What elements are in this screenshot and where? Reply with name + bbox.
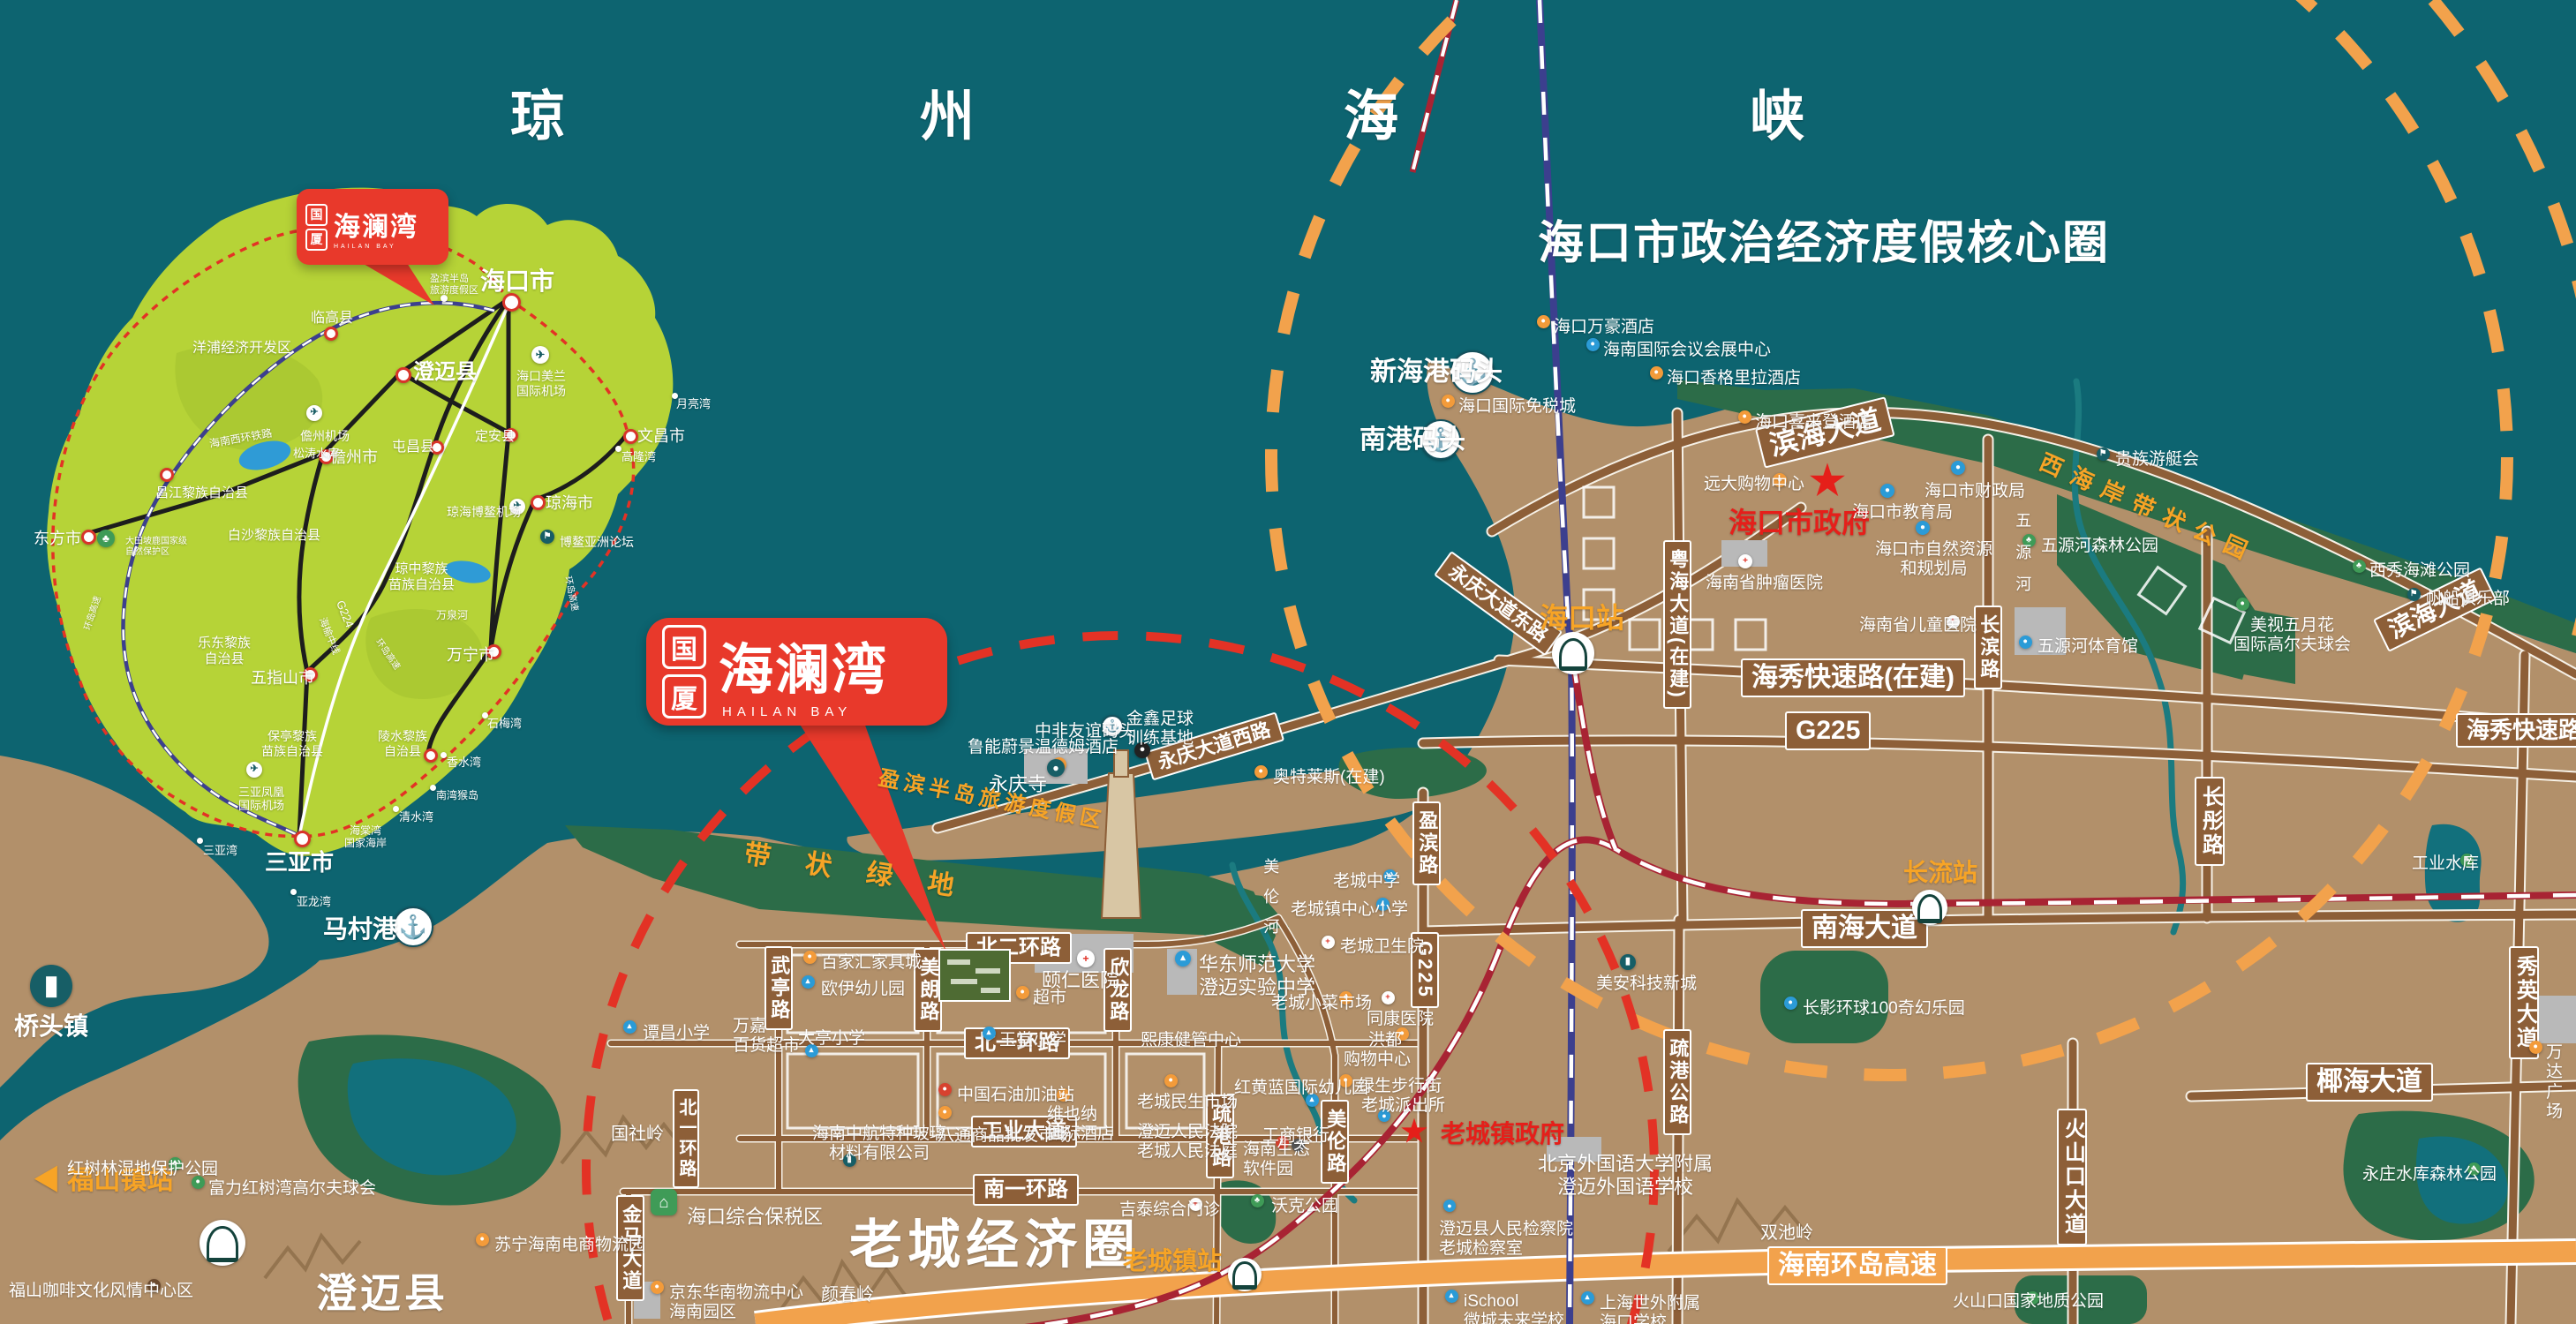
road-yuehai-v: 粤海大道(在建): [1663, 540, 1691, 709]
hosp-icon: +: [1077, 950, 1095, 967]
poi-finance-bureau: 海口市财政局: [1924, 482, 2025, 501]
poi-shangrila: 海口香格里拉酒店: [1667, 369, 1801, 388]
river-wuyuanhe: 五源河: [2013, 512, 2031, 607]
poi-procuratorate: 澄迈县人民检察院 老城检察室: [1439, 1220, 1573, 1260]
conf-icon: ●: [1586, 338, 1600, 351]
inset-dongfang: 东方市: [34, 530, 81, 548]
hill-shuangchiling: 双池岭: [1760, 1223, 1813, 1245]
poi-wuyuanhe-gym: 五源河体育馆: [2037, 637, 2138, 657]
poi-jd-logistics: 京东华南物流中心 海南园区: [669, 1283, 803, 1323]
school-icon: ▴: [623, 1020, 636, 1034]
road-haixiu-2: 海秀快速路: [2456, 713, 2576, 748]
shop-icon: ●: [651, 1281, 664, 1294]
strait-char-4: 峡: [1750, 85, 1804, 149]
poi-court: 澄迈人民法院 老城人民法庭: [1137, 1123, 1238, 1162]
inset-qingshuiwan: 清水湾: [399, 810, 433, 824]
nodeW-icon: [441, 752, 447, 758]
gov-haikou: 海口市政府: [1729, 507, 1870, 540]
poi-yongzhuang-park: 永庄水库森林公园: [2362, 1165, 2497, 1185]
school-icon: ▴: [1445, 1290, 1458, 1303]
port-xinhaigang: 新海港码头: [1370, 357, 1503, 387]
poi-petrochina: 中国石油加油站: [957, 1086, 1074, 1105]
shop-icon: ●: [938, 1106, 952, 1119]
hosp-icon: +: [1322, 936, 1335, 949]
poi-laocheng-clinic: 老城卫生院: [1340, 937, 1424, 957]
poi-mangrove-park: 红树林湿地保护公园: [67, 1160, 218, 1179]
poi-changying-park: 长影环球100奇幻乐园: [1803, 999, 1965, 1019]
sail-icon: ⚑: [540, 530, 554, 544]
sport-icon: ●: [2019, 636, 2032, 649]
inset-dingan: 定安县: [475, 429, 515, 445]
nodeW-icon: [393, 806, 399, 812]
poi-sheraton: 海口喜来登酒店: [1755, 413, 1872, 433]
poi-edu-bureau: 海口市教育局: [1852, 503, 1953, 523]
headline: 海口市政治经济度假核心圈: [1538, 217, 2110, 271]
deer-icon: ♣: [97, 530, 115, 547]
poi-lvsheng-street: 绿生步行街: [1358, 1077, 1442, 1096]
poi-yacht-club: 贵族游艇会: [2115, 450, 2199, 470]
logo-name: 海澜湾: [334, 205, 418, 244]
poi-laocheng-middle-school: 老城中学: [1333, 872, 1400, 891]
poi-meishi-golf: 美视五月花 国际高尔夫球会: [2233, 616, 2351, 656]
school-icon: ▴: [983, 1027, 996, 1040]
gov-icon: ●: [1951, 461, 1965, 475]
road-huandao-expwy: 海南环岛高速: [1767, 1246, 1947, 1285]
temple-icon: ●: [1047, 759, 1065, 777]
poi-wanhao-hotel: 海口万豪酒店: [1554, 318, 1654, 337]
station-haikou: 海口站: [1540, 602, 1624, 636]
inset-ledong: 乐东黎族 自治县: [198, 636, 251, 666]
station-laochengzhen: 老城镇站: [1123, 1246, 1222, 1275]
factory-icon: ▮: [1620, 954, 1636, 970]
strait-char-1: 琼: [510, 85, 565, 149]
node-icon: [531, 495, 546, 510]
poi-yongqing-temple: 永庆寺: [989, 773, 1047, 796]
poi-minsheng-market: 老城民生市场: [1137, 1093, 1238, 1112]
poi-police-station: 老城派出所: [1361, 1096, 1445, 1116]
poi-ouyi-kindergarten: 欧伊幼儿园: [821, 980, 905, 999]
gov-laocheng: 老城镇政府: [1441, 1119, 1564, 1148]
poi-eco-software-park: 海南生态 软件园: [1243, 1140, 1310, 1180]
poi-children-hospital: 海南省儿童医院: [1859, 616, 1977, 636]
road-yehai: 椰海大道: [2306, 1063, 2433, 1102]
inset-changjiang: 昌江黎族自治县: [155, 485, 248, 501]
river-meilunhe: 美伦河: [1261, 858, 1279, 948]
poi-yutang-primary: 玉堂小学: [999, 1031, 1066, 1050]
nodeW-icon: [615, 446, 621, 452]
inset-sanya: 三亚市: [265, 849, 334, 876]
inset-wenchang: 文昌市: [637, 427, 685, 446]
star-icon: ★: [1399, 1117, 1429, 1147]
train-icon: [1552, 632, 1594, 674]
poi-hongdu: 洪都: [1368, 1031, 1402, 1050]
inset-danzhou-airport: 儋州机场: [300, 429, 350, 444]
hotel-icon: ●: [1650, 366, 1663, 380]
inset-yangpu: 洋浦经济开发区: [192, 341, 291, 357]
inset-tunchang: 屯昌县: [392, 440, 434, 456]
inset-shimeiwan: 石梅湾: [487, 717, 522, 730]
strait-char-3: 海: [1344, 85, 1398, 149]
poi-natural-resources: 海口市自然资源 和规划局: [1875, 540, 1992, 580]
shop-icon: ●: [1442, 395, 1455, 408]
hosp-icon: +: [1738, 554, 1752, 568]
hailan-bay-logo: 国 厦 海澜湾 HAILAN BAY: [646, 618, 947, 726]
poi-batong-market: 八通商品批发市场: [938, 1126, 1072, 1146]
school-icon: ▴: [802, 975, 815, 989]
road-shugang-gonglu-v: 疏港公路: [1663, 1029, 1691, 1135]
poi-huadong-school: 华东师范大学 澄迈实验中学: [1199, 953, 1315, 999]
shop-icon: ●: [1164, 1074, 1178, 1087]
inset-qionghai: 琼海市: [546, 494, 593, 513]
inset-boao-airport: 琼海博鳌机场: [447, 505, 521, 520]
road-yingbin-v: 盈滨路: [1412, 801, 1441, 885]
poi-dutyfree: 海口国际免税城: [1458, 397, 1576, 417]
plane-icon: ✈: [531, 346, 549, 364]
logo-name-en: HAILAN BAY: [722, 704, 888, 719]
inset-wuzhishan: 五指山市: [251, 669, 314, 688]
map-stage: 国 厦 海澜湾 HAILAN BAY 国 厦 海澜湾 HAILAN BAY 琼州…: [0, 0, 2576, 1324]
poi-yuanda-mall: 远大购物中心: [1704, 475, 1804, 494]
hill-yanchunling: 颜春岭: [821, 1285, 874, 1306]
hailan-bay-logo-inset: 国 厦 海澜湾 HAILAN BAY: [297, 189, 448, 265]
inset-xiangshuiwan: 香水湾: [447, 756, 481, 769]
node-icon: [160, 468, 174, 482]
school-icon: ▴: [1175, 951, 1191, 967]
inset-sanyawan: 三亚湾: [203, 844, 237, 857]
inset-baoting: 保亭黎族 苗族自治县: [261, 729, 323, 758]
project-site-rendering: [938, 949, 1011, 1002]
logo-prefix-char-1: 国: [662, 625, 706, 669]
shop-icon: ●: [2529, 1041, 2542, 1054]
anchor-icon: ⚓: [393, 906, 433, 947]
inset-lingshui: 陵水黎族 自治县: [378, 729, 427, 758]
poi-woke-park: 沃克公园: [1271, 1197, 1338, 1216]
road-haixiu-1: 海秀快速路(在建): [1741, 658, 1965, 697]
poi-outlets: 奥特莱斯(在建): [1273, 768, 1385, 787]
node-icon: [81, 530, 96, 545]
leaf-icon: ♣: [2353, 560, 2366, 573]
inset-wanning: 万宁市: [447, 646, 494, 665]
film-icon: ●: [1784, 997, 1797, 1010]
logo-prefix: 国 厦: [305, 204, 328, 251]
shop-icon: ●: [1016, 986, 1029, 999]
poi-wanda: 万达广场: [2546, 1043, 2576, 1123]
poi-hongdu-mall: 购物中心: [1344, 1050, 1411, 1070]
inset-boao-forum: 博鳌亚洲论坛: [560, 535, 634, 550]
road-g225: G225: [1785, 711, 1871, 750]
train-icon: [200, 1220, 245, 1266]
inset-qiongzhong: 琼中黎族 苗族自治县: [388, 561, 455, 592]
poi-fuli-golf: 富力红树湾高尔夫球会: [208, 1179, 376, 1199]
gas-icon: ●: [938, 1083, 952, 1096]
poi-zhonghang-glass: 海南中航特种玻璃 材料有限公司: [812, 1125, 946, 1164]
poi-dating-primary: 大亭小学: [798, 1029, 865, 1049]
road-changtong-v: 长彤路: [2195, 777, 2225, 866]
inset-meilan-airport: 海口美兰 国际机场: [516, 369, 566, 398]
poi-jinxin-soccer: 金鑫足球 训练基地: [1126, 710, 1194, 749]
inset-chengmai: 澄迈县: [413, 360, 477, 385]
inset-baisha: 白沙黎族自治县: [228, 528, 320, 544]
road-nan1huan: 南一环路: [973, 1174, 1079, 1206]
plane-icon: ✈: [246, 762, 262, 778]
factory-icon: ▮: [30, 965, 72, 1007]
road-huoshankou-v: 火山口大道: [2057, 1109, 2087, 1245]
inset-songtao: 松涛水库: [293, 447, 339, 460]
poi-luneng-hotel: 鲁能蔚景温德姆酒店: [968, 738, 1119, 757]
hotel-icon: ●: [1738, 410, 1751, 424]
logo-prefix-char-2: 厦: [305, 229, 328, 251]
poi-wuyuanhe-park: 五源河森林公园: [2041, 537, 2158, 556]
poi-baijiahui: 百家汇家具城: [821, 953, 922, 973]
town-qiaotou: 桥头镇: [14, 1012, 88, 1041]
golf-icon: ●: [2236, 598, 2249, 611]
poi-shijiewai-school: 上海世外附属 海口学校: [1600, 1294, 1700, 1324]
poi-free-trade-zone: 海口综合保税区: [687, 1206, 823, 1229]
gov-icon: ●: [1443, 1200, 1456, 1212]
inset-nanwan: 南湾猴岛: [436, 789, 478, 801]
hosp-icon: +: [1382, 991, 1395, 1004]
hotel-icon: ●: [1537, 315, 1550, 328]
logo-name: 海澜湾: [719, 625, 888, 704]
road-changbin-v: 长滨路: [1974, 606, 2002, 689]
inset-yingbin-resort: 盈滨半岛 旅游度假区: [430, 274, 478, 297]
poi-volcano-park: 火山口国家地质公园: [1953, 1292, 2104, 1312]
road-nanhai: 南海大道: [1801, 909, 1928, 948]
poi-convention-center: 海南国际会议会展中心: [1603, 341, 1771, 360]
station-changliu: 长流站: [1903, 858, 1977, 887]
shop-icon: ●: [476, 1233, 489, 1246]
poi-ischool: iSchool 微城未来学校: [1464, 1292, 1564, 1324]
inset-haikou: 海口市: [480, 267, 554, 296]
poi-xixiu-beach: 西秀海滩公园: [2369, 561, 2470, 581]
strait-char-2: 州: [920, 85, 975, 149]
nodeW-icon: [197, 838, 203, 844]
sail-icon: ⚑: [2097, 448, 2110, 461]
inset-phoenix-airport: 三亚凤凰 国际机场: [238, 786, 284, 813]
road-bei1huan-v: 北一环路: [673, 1089, 699, 1188]
hill-guosheling: 国社岭: [611, 1125, 664, 1146]
train-icon: [1912, 890, 1947, 925]
poi-beiwai-school: 北京外国语大学附属 澄迈外国语学校: [1538, 1153, 1713, 1199]
node-icon: [294, 831, 311, 847]
poi-jitai-clinic: 吉泰综合门诊: [1119, 1200, 1220, 1220]
inset-wanquanhe: 万泉河: [436, 609, 468, 621]
logo-name-en: HAILAN BAY: [334, 244, 418, 250]
poi-suning-logistics: 苏宁海南电商物流园: [494, 1236, 645, 1255]
poi-meian-tech-city: 美安科技新城: [1596, 974, 1697, 994]
poi-fushan-coffee: 福山咖啡文化风情中心区: [9, 1282, 193, 1301]
poi-hhl-kindergarten: 红黄蓝国际幼儿园: [1234, 1079, 1368, 1098]
shop-icon: ●: [1254, 765, 1268, 779]
poi-laocheng-primary: 老城镇中心小学: [1291, 900, 1408, 920]
econ-circle-title: 老城经济圈: [849, 1215, 1141, 1277]
poi-tanchang-primary: 谭昌小学: [643, 1024, 710, 1043]
poi-xiaocai-market: 老城小菜市场: [1271, 994, 1372, 1013]
node-icon: [395, 367, 411, 383]
poi-supermarket: 超市: [1033, 989, 1066, 1008]
leaf-icon: ♣: [1251, 1194, 1264, 1207]
shop-icon: ●: [803, 951, 817, 964]
port-nangang: 南港码头: [1360, 425, 1465, 455]
school-icon: ▴: [1581, 1291, 1594, 1305]
govgreen-icon: ⌂: [651, 1189, 677, 1215]
poi-gongye-reservoir: 工业水库: [2412, 854, 2479, 874]
poi-xikang-center: 熙康健管中心: [1141, 1031, 1241, 1050]
sail-icon: ⚑: [2407, 588, 2421, 601]
poi-sailing-club: 帆船俱乐部: [2426, 590, 2510, 609]
inset-yueliangwan: 月亮湾: [676, 397, 711, 410]
logo-prefix-char-2: 厦: [662, 674, 706, 718]
poi-tumor-hospital: 海南省肿瘤医院: [1706, 574, 1823, 593]
star-icon: ★: [1807, 460, 1848, 500]
train-icon: [1228, 1258, 1262, 1291]
district-chengmai: 澄迈县: [316, 1269, 448, 1317]
inset-yalongwan: 亚龙湾: [297, 895, 331, 908]
inset-datian-reserve: 大田坡鹿国家级 自然保护区: [125, 537, 187, 558]
inset-gaolongwan: 高隆湾: [621, 450, 656, 463]
inset-lingao: 临高县: [311, 311, 353, 327]
plane-icon: ✈: [306, 405, 322, 421]
inset-haitangwan: 海棠湾 国家海岸: [344, 824, 387, 849]
nodeW-icon: [430, 785, 436, 791]
nodeW-icon: [290, 889, 297, 895]
gov-icon: ●: [1880, 484, 1894, 498]
node-icon: [324, 327, 338, 341]
node-icon: [623, 429, 638, 444]
logo-prefix-char-1: 国: [305, 204, 328, 226]
logo-prefix: 国 厦: [662, 625, 706, 718]
poi-wanjia-store: 万嘉 百货超市: [733, 1017, 800, 1057]
port-macun: 马村港: [323, 914, 397, 944]
poi-tongkang-hospital: 同康医院: [1367, 1010, 1434, 1029]
